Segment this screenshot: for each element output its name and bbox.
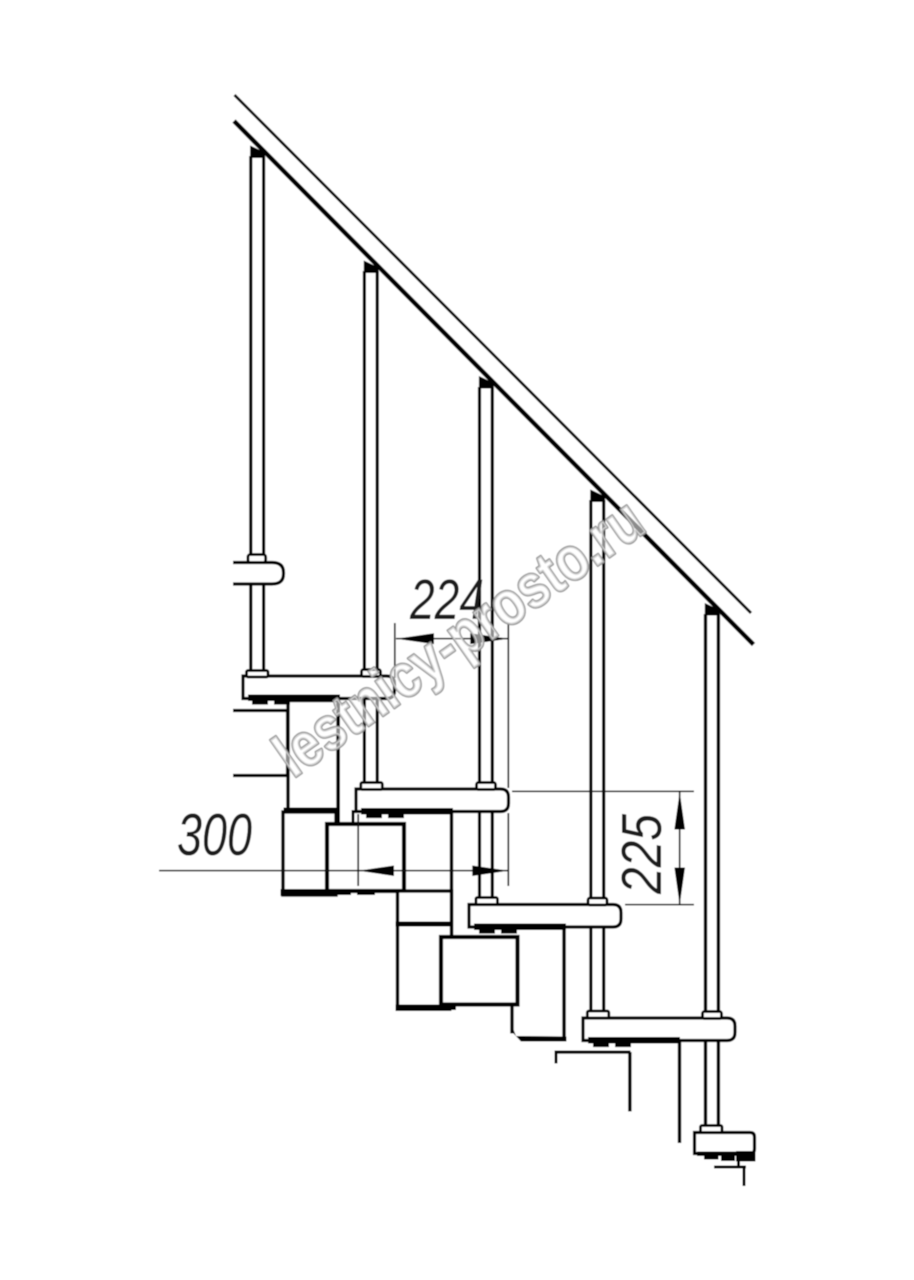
svg-text:300: 300	[177, 802, 252, 868]
svg-text:225: 225	[610, 814, 674, 895]
